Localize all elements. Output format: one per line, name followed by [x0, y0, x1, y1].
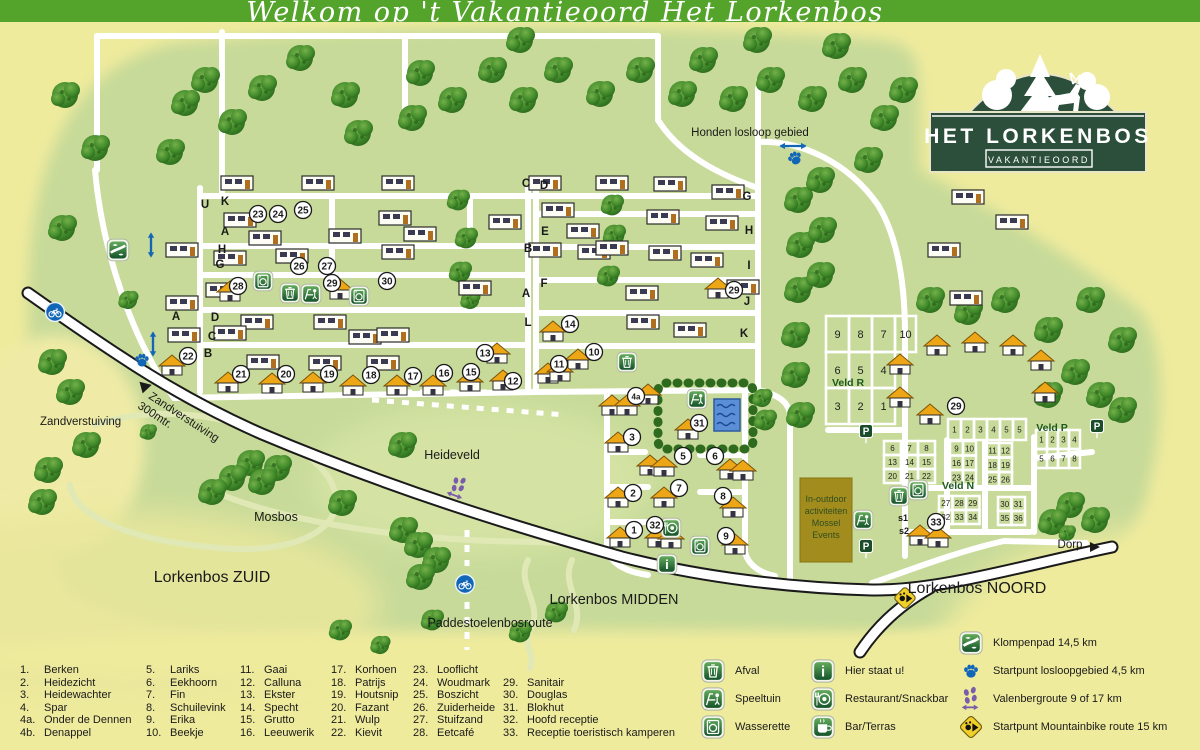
row-letter: I: [747, 260, 750, 272]
plot-number: 2: [965, 426, 970, 435]
area-label: Veld P: [1036, 422, 1068, 434]
plot-marker-number: 15: [465, 368, 477, 379]
legend-column-2: 5.Lariks6.Eekhoorn7.Fin8.Schuilevink9.Er…: [146, 664, 240, 740]
legend-item-name: Spar: [44, 702, 67, 715]
plot-number: 35: [1000, 514, 1009, 523]
bungalow-icon: [166, 296, 198, 310]
legend-item: 8.Schuilevink: [146, 702, 240, 715]
legend-item-name: Heidewachter: [44, 689, 111, 702]
legend-item-number: 18.: [331, 677, 355, 690]
activity-box-line: In-outdoor: [805, 494, 846, 504]
activity-box-line: activiteiten: [805, 506, 848, 516]
bungalow-icon: [377, 328, 409, 342]
legend-item: 15.Grutto: [240, 714, 331, 727]
legend-item-number: 27.: [413, 714, 437, 727]
activity-box-line: Mossel: [812, 518, 841, 528]
row-letter: G: [743, 191, 752, 203]
legend-item-name: Specht: [264, 702, 298, 715]
map-legend: 1.Berken2.Heidezicht3.Heidewachter4.Spar…: [0, 655, 1200, 750]
trash-icon: [617, 352, 637, 372]
legend-item-name: Wulp: [355, 714, 380, 727]
plot-marker: 27: [319, 258, 336, 275]
plot-number: 4: [880, 365, 886, 377]
plot-marker: 14: [562, 316, 579, 333]
plot-marker: 7: [671, 480, 688, 497]
plot-marker-number: 8: [720, 492, 726, 503]
legend-item-name: Beekje: [170, 727, 204, 740]
legend-item-number: 29.: [503, 677, 527, 690]
playground-icon: [700, 686, 726, 712]
legend-item-name: Houtsnip: [355, 689, 398, 702]
plot-number: 13: [888, 458, 897, 467]
area-label: Veld R: [832, 377, 865, 389]
info-icon: i: [657, 554, 677, 574]
plot-marker-number: 26: [293, 262, 305, 273]
laundry-icon: [908, 480, 928, 500]
plot-marker-number: 10: [588, 348, 600, 359]
plot-number: 16: [952, 459, 961, 468]
legend-facility-item: iHier staat u!: [810, 657, 948, 685]
plot-marker: 6: [707, 448, 724, 465]
plot-number: 5: [1004, 426, 1009, 435]
plot-number: 11: [988, 446, 997, 455]
bungalow-icon: [542, 203, 574, 217]
bungalow-icon: [529, 243, 561, 257]
legend-item: 28.Eetcafé: [413, 727, 503, 740]
plot-marker: 29: [324, 275, 341, 292]
plot-number: 22: [922, 472, 931, 481]
plot-marker: 12: [505, 373, 522, 390]
plot-marker-number: 6: [712, 452, 718, 463]
legend-facility-label: Bar/Terras: [845, 721, 896, 733]
plot-marker-number: 31: [693, 419, 705, 430]
legend-item: 16.Leeuwerik: [240, 727, 331, 740]
legend-item-name: Grutto: [264, 714, 295, 727]
bungalow-icon: [928, 243, 960, 257]
legend-item-name: Blokhut: [527, 702, 564, 715]
area-label: Heideveld: [424, 448, 480, 462]
plot-number: 17: [965, 459, 974, 468]
plot-number: 15: [922, 458, 931, 467]
trash-icon: [280, 283, 300, 303]
legend-item: 12.Calluna: [240, 677, 331, 690]
legend-item-name: Kievit: [355, 727, 382, 740]
plot-number: 21: [905, 472, 914, 481]
logo-title: HET LORKENBOS: [924, 125, 1152, 148]
plot-marker: 33: [928, 514, 945, 531]
plot-marker-number: 32: [649, 521, 661, 532]
legend-item-number: 1.: [20, 664, 44, 677]
legend-route-item: Startpunt losloopgebied 4,5 km: [958, 657, 1167, 685]
plot-grid: 987654321: [826, 316, 895, 424]
legend-item-name: Onder de Dennen: [44, 714, 131, 727]
legend-item-number: 13.: [240, 689, 264, 702]
legend-item-name: Eekhoorn: [170, 677, 217, 690]
row-letter: A: [522, 288, 530, 300]
plot-marker: 31: [691, 415, 708, 432]
plot-number: 6: [890, 444, 895, 453]
plot-marker-number: 5: [680, 452, 686, 463]
legend-item: 14.Specht: [240, 702, 331, 715]
bungalow-icon: [459, 281, 491, 295]
plot-marker-number: 19: [323, 370, 335, 381]
legend-item: 18.Patrijs: [331, 677, 413, 690]
plot-number: 1: [880, 401, 886, 413]
legend-route-label: Valenbergroute 9 of 17 km: [993, 693, 1122, 705]
plot-number: 6: [1050, 455, 1055, 464]
plot-number: 3: [1061, 436, 1066, 445]
area-label: Lorkenbos MIDDEN: [550, 592, 679, 608]
legend-item-name: Calluna: [264, 677, 301, 690]
plot-marker: 2: [625, 485, 642, 502]
plot-marker-number: 12: [507, 377, 519, 388]
legend-item-number: 6.: [146, 677, 170, 690]
restaurant-icon: [810, 686, 836, 712]
legend-item-number: 4.: [20, 702, 44, 715]
plot-marker-number: 25: [297, 206, 309, 217]
bungalow-icon: [952, 190, 984, 204]
bungalow-icon: [382, 245, 414, 259]
plot-number: 7: [880, 329, 886, 341]
plot-number: 3: [978, 426, 983, 435]
bungalow-icon: [168, 328, 200, 342]
plot-marker: 22: [180, 348, 197, 365]
legend-item-name: Hoofd receptie: [527, 714, 599, 727]
legend-item: 5.Lariks: [146, 664, 240, 677]
legend-item: 6.Eekhoorn: [146, 677, 240, 690]
legend-item-number: 2.: [20, 677, 44, 690]
bungalow-icon: [379, 211, 411, 225]
plot-number: 7: [907, 444, 912, 453]
klomp-icon: [958, 630, 984, 656]
restaurant-icon: [661, 518, 681, 538]
row-letter: B: [204, 348, 212, 360]
bar-icon: [810, 714, 836, 740]
plot-marker-number: 3: [629, 433, 635, 444]
laundry-icon: [253, 271, 273, 291]
plot-number: 30: [1000, 500, 1009, 509]
plot-marker: 1: [626, 522, 643, 539]
facility-legend-2: iHier staat u!Restaurant/SnackbarBar/Ter…: [810, 657, 948, 741]
legend-item-number: 5.: [146, 664, 170, 677]
plot-number: 29: [968, 499, 977, 508]
bungalow-icon: [166, 243, 198, 257]
plot-marker: 8: [715, 488, 732, 505]
legend-item: 20.Fazant: [331, 702, 413, 715]
bungalow-icon: [691, 253, 723, 267]
row-letter: D: [211, 312, 219, 324]
plot-number: 25: [988, 475, 997, 484]
laundry-icon: [690, 536, 710, 556]
plot-number: 10: [899, 329, 911, 341]
plot-marker: 19: [321, 366, 338, 383]
legend-facility-item: Restaurant/Snackbar: [810, 685, 948, 713]
plot-marker-number: 2: [630, 489, 636, 500]
park-map-page: In-outdooractiviteitenMosselEvents 98765…: [0, 0, 1200, 750]
area-label: Veld N: [942, 480, 974, 492]
bungalow-icon: [302, 176, 334, 190]
plot-number: 1: [1039, 436, 1044, 445]
bungalow-icon: [950, 291, 982, 305]
bungalow-icon: [647, 210, 679, 224]
legend-route-label: Startpunt losloopgebied 4,5 km: [993, 665, 1145, 677]
row-letter: E: [541, 226, 549, 238]
legend-item: 29.Sanitair: [503, 677, 733, 690]
legend-item-name: Erika: [170, 714, 195, 727]
plot-number: 8: [924, 444, 929, 453]
facility-legend-1: AfvalSpeeltuinWasserette: [700, 657, 790, 741]
plot-marker: 26: [291, 258, 308, 275]
plot-marker-number: 1: [631, 526, 637, 537]
svg-text:i: i: [821, 665, 825, 681]
plot-marker-number: 22: [182, 352, 194, 363]
row-letter: H: [218, 244, 226, 256]
bungalow-icon: [706, 216, 738, 230]
paw-icon: [958, 658, 984, 684]
legend-facility-item: Bar/Terras: [810, 713, 948, 741]
legend-item-number: 4b.: [20, 727, 44, 740]
legend-item-name: Gaai: [264, 664, 287, 677]
legend-item-number: 22.: [331, 727, 355, 740]
plot-number: 9: [954, 444, 959, 453]
plot-number: 10: [965, 444, 974, 453]
plot-marker: 24: [270, 206, 287, 223]
bungalow-icon: [567, 224, 599, 238]
row-letter: F: [540, 278, 547, 290]
plot-marker: 5: [675, 448, 692, 465]
legend-item-number: 12.: [240, 677, 264, 690]
area-label: Lorkenbos ZUID: [154, 569, 271, 586]
legend-facility-label: Hier staat u!: [845, 665, 904, 677]
legend-item-number: 15.: [240, 714, 264, 727]
playground-icon: [687, 389, 707, 409]
plot-marker-number: 11: [554, 360, 565, 371]
legend-item-number: 25.: [413, 689, 437, 702]
plot-number: 12: [1001, 446, 1010, 455]
bungalow-icon: [649, 246, 681, 260]
legend-item-name: Denappel: [44, 727, 91, 740]
bungalow-icon: [654, 177, 686, 191]
bungalow-icon: [626, 286, 658, 300]
legend-item-name: Berken: [44, 664, 79, 677]
plot-number: 1: [952, 426, 957, 435]
plot-marker-number: 20: [280, 370, 292, 381]
svg-text:P: P: [863, 427, 870, 438]
area-label: Dorp: [1058, 539, 1083, 551]
plot-number: 8: [857, 329, 863, 341]
laundry-icon: [349, 286, 369, 306]
laundry-icon: [700, 714, 726, 740]
plot-marker: 10: [586, 344, 603, 361]
plot-grid: 272829323334: [939, 496, 980, 524]
legend-route-item: Klompenpad 14,5 km: [958, 629, 1167, 657]
legend-item: 19.Houtsnip: [331, 689, 413, 702]
bungalow-icon: [249, 231, 281, 245]
area-label: Honden losloop gebied: [691, 127, 809, 139]
legend-item: 3.Heidewachter: [20, 689, 146, 702]
svg-text:P: P: [1094, 422, 1101, 433]
plot-number: 34: [968, 513, 977, 522]
route-legend: Klompenpad 14,5 kmStartpunt losloopgebie…: [958, 629, 1167, 741]
plot-marker-number: 29: [326, 279, 338, 290]
legend-item: 4a.Onder de Dennen: [20, 714, 146, 727]
plot-number: 3: [834, 401, 840, 413]
legend-item: 24.Woudmark: [413, 677, 503, 690]
plot-marker: 9: [718, 528, 735, 545]
plot-grid: 111218192526: [986, 443, 1012, 487]
legend-item-name: Patrijs: [355, 677, 386, 690]
plot-number: 14: [905, 458, 914, 467]
legend-item: 31.Blokhut: [503, 702, 733, 715]
plot-marker: 3: [624, 429, 641, 446]
legend-item-name: Ekster: [264, 689, 295, 702]
logo-subtitle: VAKANTIEOORD: [988, 155, 1090, 165]
legend-item-number: 30.: [503, 689, 527, 702]
plot-marker: 32: [647, 517, 664, 534]
bike-icon: [46, 303, 65, 322]
legend-item: 10.Beekje: [146, 727, 240, 740]
legend-item-number: 4a.: [20, 714, 44, 727]
plot-marker-number: 14: [564, 320, 576, 331]
legend-item: 33.Receptie toeristisch kamperen: [503, 727, 733, 740]
legend-item: 1.Berken: [20, 664, 146, 677]
plot-number: 7: [1061, 455, 1066, 464]
plot-marker: 18: [363, 367, 380, 384]
legend-item-number: 14.: [240, 702, 264, 715]
row-letter: s2: [899, 526, 909, 536]
plot-marker: 11: [551, 356, 568, 373]
legend-item-number: 31.: [503, 702, 527, 715]
plot-marker-number: 29: [728, 286, 740, 297]
playground-icon: [301, 284, 321, 304]
plot-marker: 13: [477, 345, 494, 362]
bungalow-icon: [627, 315, 659, 329]
legend-column-6: 29.Sanitair30.Douglas31.Blokhut32.Hoofd …: [503, 677, 733, 740]
plot-marker-number: 21: [235, 370, 247, 381]
legend-item-number: 11.: [240, 664, 264, 677]
legend-item-name: Schuilevink: [170, 702, 226, 715]
legend-item: 25.Boszicht: [413, 689, 503, 702]
plot-number: 8: [1072, 455, 1077, 464]
plot-number: 18: [988, 461, 997, 470]
legend-item: 17.Korhoen: [331, 664, 413, 677]
playground-icon: [853, 510, 873, 530]
legend-item: 13.Ekster: [240, 689, 331, 702]
legend-item-number: 23.: [413, 664, 437, 677]
area-label: Zandverstuiving: [40, 416, 121, 428]
plot-marker-number: 9: [723, 532, 729, 543]
footprints-icon: [958, 686, 984, 712]
legend-column-3: 11.Gaai12.Calluna13.Ekster14.Specht15.Gr…: [240, 664, 331, 740]
legend-facility-label: Speeltuin: [735, 693, 781, 705]
legend-item-name: Boszicht: [437, 689, 479, 702]
plot-marker: 17: [405, 368, 422, 385]
legend-column-4: 17.Korhoen18.Patrijs19.Houtsnip20.Fazant…: [331, 664, 413, 740]
legend-item: 4.Spar: [20, 702, 146, 715]
legend-item-number: 16.: [240, 727, 264, 740]
plot-number: 5: [1039, 455, 1044, 464]
legend-item-number: 28.: [413, 727, 437, 740]
row-letter: U: [201, 199, 209, 211]
plot-number: 28: [955, 499, 964, 508]
legend-item-number: 8.: [146, 702, 170, 715]
activity-box: In-outdooractiviteitenMosselEvents: [800, 478, 852, 562]
legend-item-number: 19.: [331, 689, 355, 702]
plot-marker-number: 16: [438, 369, 450, 380]
plot-marker: 15: [463, 364, 480, 381]
bungalow-icon: [404, 227, 436, 241]
legend-item-name: Woudmark: [437, 677, 490, 690]
legend-item-name: Zuiderheide: [437, 702, 495, 715]
plot-marker-number: 29: [950, 402, 962, 413]
plot-number: 2: [857, 401, 863, 413]
plot-grid: 678131415202122: [884, 441, 935, 483]
legend-item-number: 32.: [503, 714, 527, 727]
area-label: Mosbos: [254, 510, 298, 524]
row-letter: L: [524, 317, 531, 329]
legend-item-name: Fazant: [355, 702, 389, 715]
plot-marker: 28: [230, 278, 247, 295]
legend-item: 27.Stuifzand: [413, 714, 503, 727]
legend-item: 2.Heidezicht: [20, 677, 146, 690]
bike-icon: [456, 575, 475, 594]
legend-facility-label: Wasserette: [735, 721, 790, 733]
legend-item-number: 20.: [331, 702, 355, 715]
legend-item-number: 33.: [503, 727, 527, 740]
legend-item-name: Fin: [170, 689, 185, 702]
legend-item-number: 7.: [146, 689, 170, 702]
row-letter: A: [172, 311, 180, 323]
bungalow-icon: [712, 185, 744, 199]
row-letter: H: [745, 225, 753, 237]
legend-item-number: 17.: [331, 664, 355, 677]
legend-item: 23.Looflicht: [413, 664, 503, 677]
plot-grid: 12345678: [1036, 430, 1080, 468]
svg-text:i: i: [665, 557, 669, 572]
bungalow-icon: [329, 229, 361, 243]
bungalow-icon: [596, 176, 628, 190]
plot-marker: 23: [250, 206, 267, 223]
plot-grid: 30313536: [998, 497, 1025, 525]
plot-number: 4: [1072, 436, 1077, 445]
legend-route-item: Valenbergroute 9 of 17 km: [958, 685, 1167, 713]
legend-facility-item: Wasserette: [700, 713, 790, 741]
bungalow-icon: [596, 241, 628, 255]
plot-marker: 29: [726, 282, 743, 299]
plot-marker: 21: [233, 366, 250, 383]
plot-number: 9: [834, 329, 840, 341]
bungalow-icon: [314, 315, 346, 329]
row-letter: A: [221, 226, 229, 238]
plot-marker-number: 30: [381, 277, 393, 288]
plot-marker-number: 28: [232, 282, 244, 293]
plot-marker-number: 17: [407, 372, 419, 383]
legend-item: 4b.Denappel: [20, 727, 146, 740]
legend-item: 7.Fin: [146, 689, 240, 702]
row-letter: D: [540, 180, 548, 192]
legend-item-number: 26.: [413, 702, 437, 715]
plot-marker-number: 33: [930, 518, 942, 529]
plot-number: 19: [1001, 461, 1010, 470]
plot-marker: 25: [295, 202, 312, 219]
legend-item: 11.Gaai: [240, 664, 331, 677]
legend-item: 22.Kievit: [331, 727, 413, 740]
plot-marker-number: 4a: [632, 393, 641, 402]
legend-item-name: Leeuwerik: [264, 727, 314, 740]
bungalow-icon: [247, 355, 279, 369]
legend-facility-item: Afval: [700, 657, 790, 685]
plot-marker-number: 23: [252, 210, 264, 221]
